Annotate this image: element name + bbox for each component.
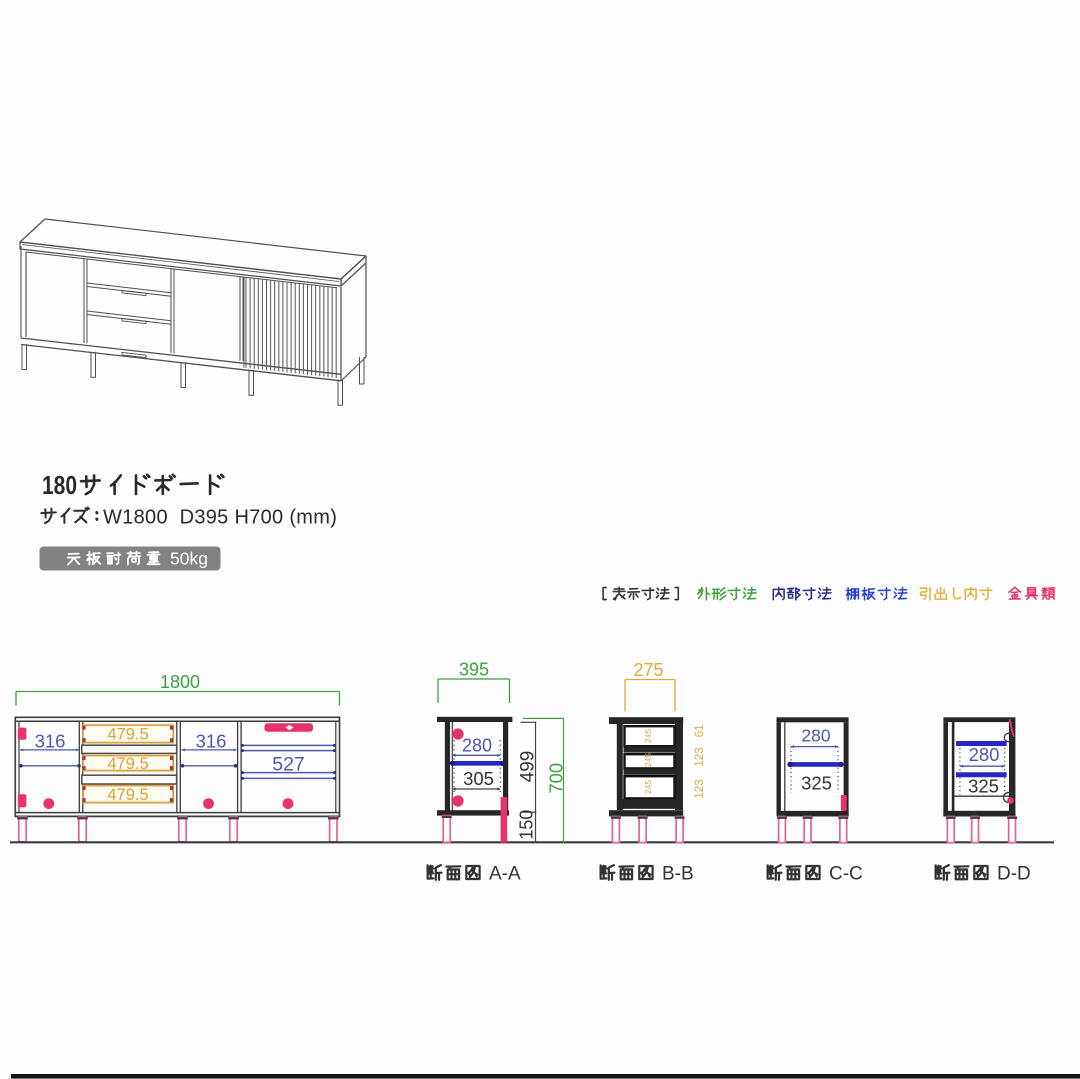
svg-text:245: 245	[643, 753, 653, 767]
svg-text:325: 325	[968, 776, 999, 797]
svg-text:700: 700	[546, 763, 567, 794]
svg-text:50kg: 50kg	[170, 549, 208, 569]
svg-text:479.5: 479.5	[107, 786, 148, 804]
svg-text:275: 275	[633, 660, 663, 680]
svg-text:479.5: 479.5	[107, 755, 148, 773]
svg-text:316: 316	[35, 730, 66, 751]
svg-text:W1800 D395 H700 (mm): W1800 D395 H700 (mm)	[103, 507, 337, 529]
svg-text:245: 245	[643, 729, 653, 743]
svg-text:499: 499	[517, 751, 538, 783]
svg-text:123: 123	[694, 779, 706, 798]
svg-text:395: 395	[459, 660, 489, 680]
svg-text:245: 245	[643, 780, 653, 794]
svg-text:180: 180	[42, 470, 77, 500]
svg-text:479.5: 479.5	[107, 726, 148, 744]
svg-text:316: 316	[196, 730, 227, 751]
svg-text:A-A: A-A	[489, 864, 521, 885]
svg-text:123: 123	[694, 747, 706, 766]
svg-text:527: 527	[272, 754, 305, 776]
svg-text:280: 280	[801, 726, 830, 746]
svg-text:C-C: C-C	[829, 864, 863, 885]
svg-text:280: 280	[462, 736, 492, 756]
svg-text:325: 325	[801, 773, 832, 794]
svg-text:305: 305	[463, 768, 494, 789]
svg-text:1800: 1800	[160, 672, 200, 692]
svg-text:61: 61	[694, 725, 706, 738]
svg-text:B-B: B-B	[662, 864, 694, 885]
svg-text:D-D: D-D	[997, 864, 1031, 885]
svg-text:150: 150	[517, 810, 537, 840]
svg-text:280: 280	[969, 744, 1000, 765]
